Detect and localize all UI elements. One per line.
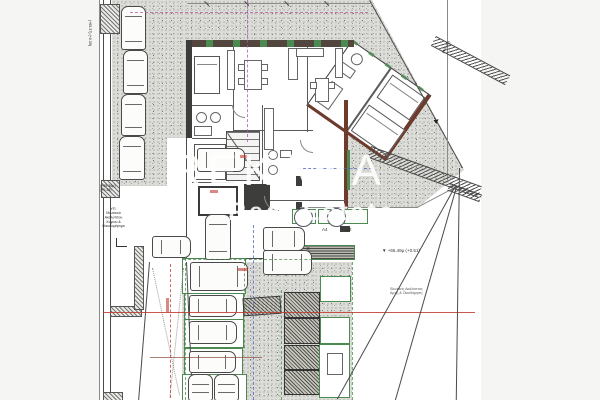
car: [188, 374, 213, 400]
setback-line-green: [244, 258, 245, 348]
survey-line: [447, 0, 448, 180]
setback-line-green: [281, 290, 282, 400]
closet: [227, 50, 235, 90]
bath-fixture: [194, 126, 212, 136]
elevator-shaft: [319, 344, 350, 398]
storage-cell: [242, 296, 281, 317]
car: [190, 262, 248, 291]
setback-line-green: [183, 259, 353, 260]
elevator-car: [327, 353, 343, 375]
dining-table: [315, 78, 329, 102]
chair: [310, 82, 317, 89]
car: [263, 250, 312, 275]
storage-cell: [284, 370, 320, 395]
watermark-subtitle: Real Estate: [228, 198, 396, 227]
dimension-line: [188, 3, 372, 4]
car: [189, 351, 236, 373]
utility-line-magenta: [130, 12, 368, 13]
partition-wall: [192, 105, 234, 106]
sofa: [335, 48, 343, 78]
left-margin: [0, 0, 99, 400]
court-label: Α4: [322, 227, 328, 232]
storage-cell: [284, 345, 320, 370]
watermark-brand: REKANA: [170, 146, 387, 196]
right-margin: [481, 0, 600, 400]
core-room: [320, 276, 351, 302]
chair: [261, 78, 268, 85]
sidewalk-hatch: [134, 246, 144, 310]
exterior-wall-top: [186, 40, 354, 47]
street-line: [103, 0, 104, 400]
court-label: Α2: [346, 227, 352, 232]
car: [263, 227, 305, 251]
bed: [194, 56, 220, 94]
sidewalk-hatch: [100, 4, 120, 34]
street-line: [99, 0, 100, 400]
car: [123, 50, 148, 94]
ramp-centerline: [170, 264, 171, 398]
kitchen-counter: [264, 108, 274, 150]
street-line: [110, 0, 111, 400]
setback-line-green: [185, 258, 186, 400]
car: [189, 295, 237, 317]
utility-line-purple: [247, 0, 248, 142]
red-dim-text: [238, 268, 248, 271]
chair: [328, 82, 335, 89]
chair: [238, 78, 245, 85]
level-annotation: (+65.37) (+0.39): [88, 20, 92, 46]
setback-line-green: [352, 262, 353, 400]
partition-wall: [307, 47, 308, 132]
note-annotation: Ιδιωτικός Ακάλυπτος Αρχή & Οικοδόμηση: [390, 287, 423, 295]
bench-mark-symbol: [116, 238, 127, 247]
bath-fixture: [210, 112, 221, 123]
storage-cell: [284, 318, 320, 344]
x-marker: ×: [306, 246, 310, 253]
site-boundary: [456, 168, 460, 400]
level-annotation: ▼ +65.49μ (+0.51): [382, 248, 420, 253]
level-value: (+0.38): [100, 188, 116, 192]
sidewalk-hatch: [103, 392, 123, 400]
floor-plan-canvas: Α4 Α2: [0, 0, 600, 400]
note-annotation: ΥΠ. Ιδιωτικού Ακαλύπτου Χώρου & Οικοδομή…: [100, 207, 127, 228]
chair: [238, 64, 245, 71]
exterior-wall-left: [186, 40, 192, 138]
level-annotation: (+65.36μ) (+0.38): [100, 184, 116, 192]
car: [119, 136, 145, 180]
chair: [261, 64, 268, 71]
car: [121, 94, 146, 136]
car: [152, 236, 191, 258]
note-line: Αρχή & Οικοδόμηση: [390, 291, 423, 295]
car: [189, 321, 237, 344]
bath-fixture: [196, 112, 207, 123]
sofa: [296, 48, 324, 57]
bath-fixture: [348, 51, 365, 68]
car: [214, 374, 239, 400]
core-room: [320, 317, 350, 344]
red-reference-line: [150, 357, 262, 358]
note-line: Οικοδομήσιμο: [100, 224, 127, 228]
red-dim-text: [166, 298, 169, 312]
storage-cell: [284, 292, 320, 318]
